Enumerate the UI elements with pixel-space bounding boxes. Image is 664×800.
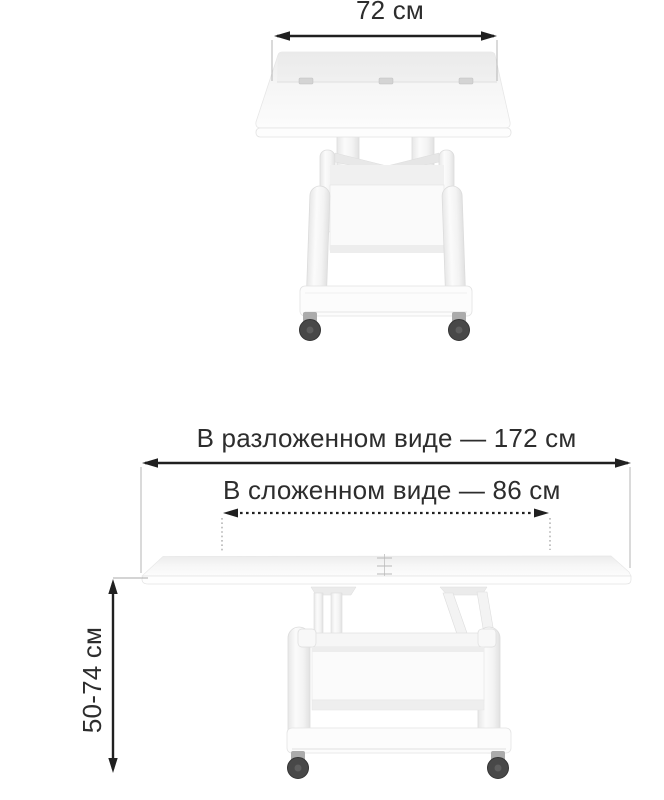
side-view-figure: В разложенном виде — 172 см В сложенном … bbox=[0, 415, 664, 800]
folded-width-dimension-label: В сложенном виде — 86 см bbox=[223, 475, 549, 505]
caster-wheel-left bbox=[288, 751, 309, 779]
folded-width-dimension-arrow bbox=[222, 509, 550, 554]
tabletop-folded bbox=[256, 52, 511, 137]
tabletop-unfolded bbox=[142, 554, 631, 584]
height-dimension-label: 50-74 см bbox=[77, 580, 107, 780]
front-view-figure: 72 см bbox=[0, 0, 664, 370]
caster-wheel-right bbox=[488, 751, 509, 779]
front-view-illustration bbox=[0, 0, 664, 370]
width-dimension-label: 72 см bbox=[275, 0, 505, 25]
product-dimensions-diagram: 72 см bbox=[0, 0, 664, 800]
height-dimension-arrow bbox=[108, 578, 290, 773]
lift-posts bbox=[314, 592, 494, 635]
pedestal-box bbox=[312, 647, 484, 710]
base-platform bbox=[287, 728, 511, 753]
unfolded-width-dimension-label: В разложенном виде — 172 см bbox=[142, 423, 631, 453]
pedestal-box bbox=[330, 165, 444, 253]
base-platform bbox=[300, 286, 472, 316]
